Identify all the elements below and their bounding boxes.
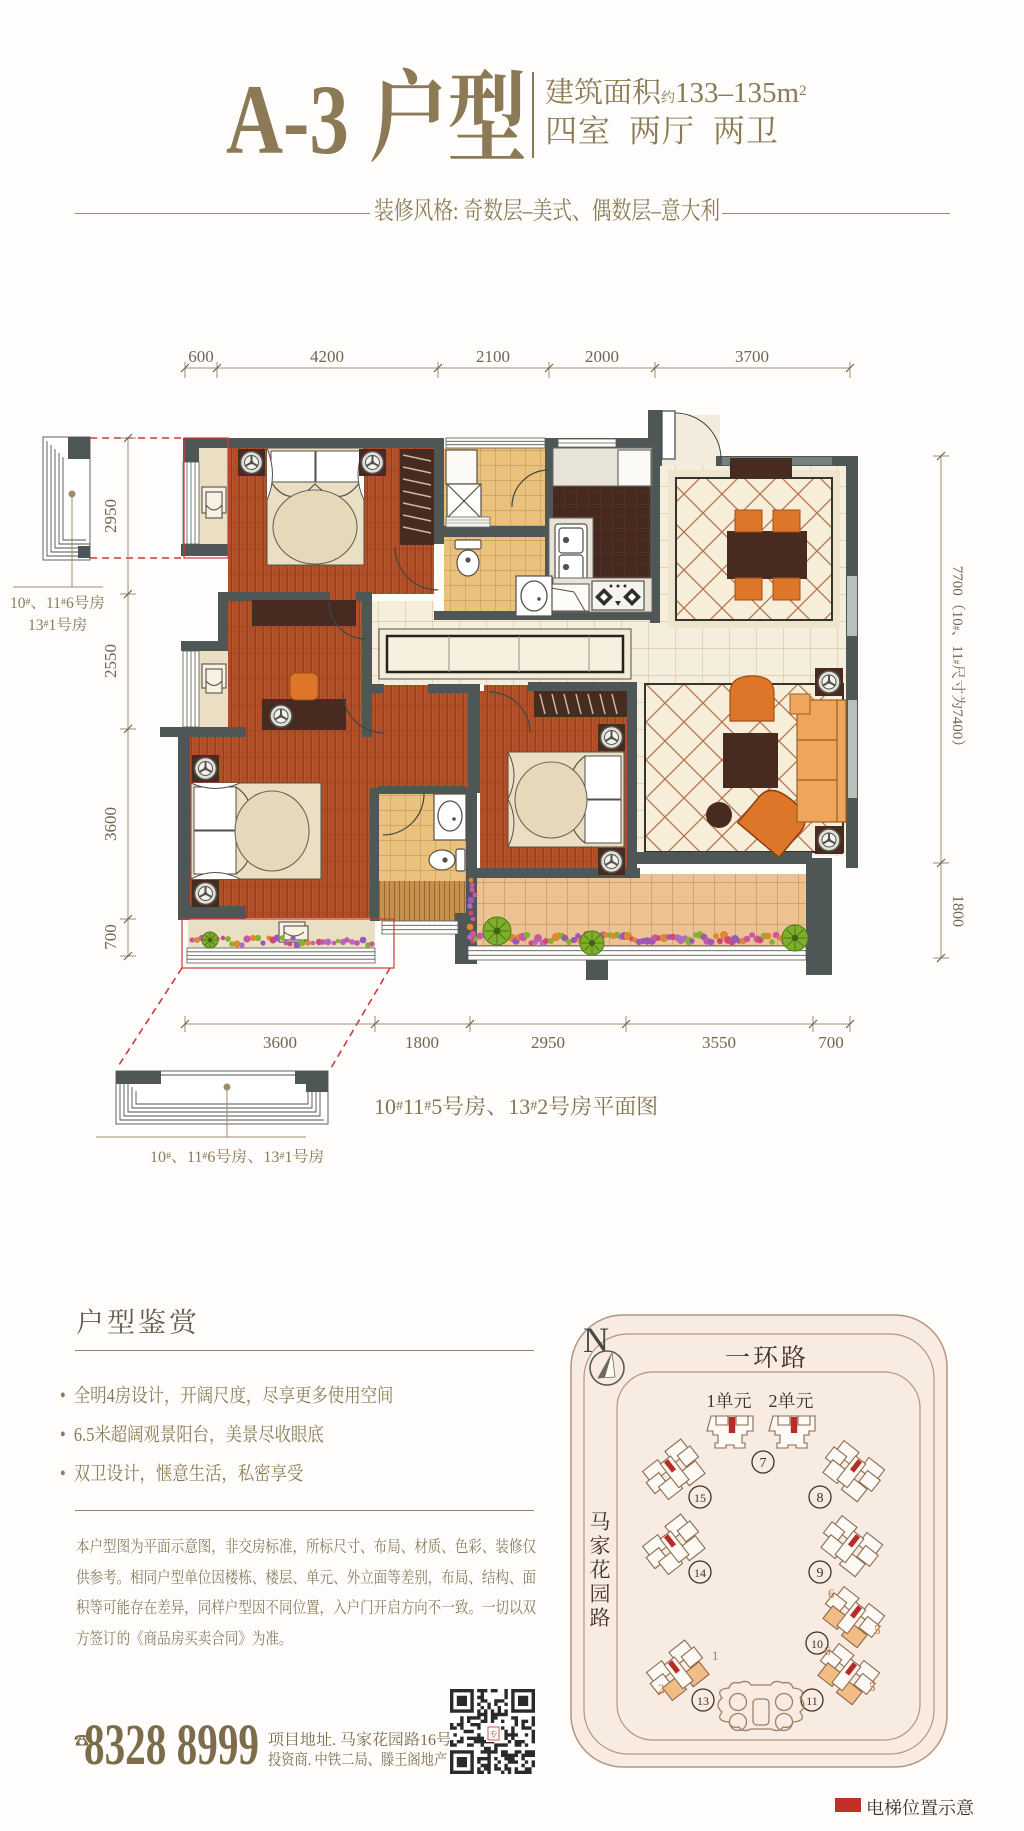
svg-text:1800: 1800 xyxy=(949,895,966,927)
svg-text:2: 2 xyxy=(658,1681,665,1696)
svg-text:4200: 4200 xyxy=(310,347,344,366)
svg-text:3600: 3600 xyxy=(101,807,120,841)
svg-text:马: 马 xyxy=(590,1510,611,1534)
svg-text:3600: 3600 xyxy=(263,1033,297,1052)
svg-text:7700（10#、11#尺寸为7400）: 7700（10#、11#尺寸为7400） xyxy=(949,566,966,754)
svg-text:700: 700 xyxy=(101,924,120,950)
svg-text:6: 6 xyxy=(828,1586,835,1601)
svg-text:10#11#5号房、13#2号房平面图: 10#11#5号房、13#2号房平面图 xyxy=(374,1094,658,1119)
svg-text:家: 家 xyxy=(590,1534,611,1558)
svg-text:一环路: 一环路 xyxy=(725,1345,809,1372)
svg-text:2100: 2100 xyxy=(476,347,510,366)
svg-text:3700: 3700 xyxy=(735,347,769,366)
svg-text:路: 路 xyxy=(590,1606,611,1630)
svg-text:14: 14 xyxy=(694,1566,706,1580)
svg-text:2550: 2550 xyxy=(101,644,120,678)
svg-text:700: 700 xyxy=(818,1033,844,1052)
svg-text:13: 13 xyxy=(697,1694,709,1708)
svg-text:1单元: 1单元 xyxy=(707,1391,752,1411)
svg-text:10: 10 xyxy=(811,1637,823,1651)
svg-text:6: 6 xyxy=(824,1643,831,1658)
svg-text:11: 11 xyxy=(806,1694,818,1708)
svg-text:1800: 1800 xyxy=(405,1033,439,1052)
svg-text:专: 专 xyxy=(490,1730,498,1739)
svg-text:10#、11#6号房: 10#、11#6号房 xyxy=(10,594,105,612)
svg-text:园: 园 xyxy=(590,1582,611,1606)
svg-text:600: 600 xyxy=(188,347,214,366)
svg-text:2950: 2950 xyxy=(531,1033,565,1052)
svg-text:15: 15 xyxy=(694,1491,706,1505)
svg-text:2000: 2000 xyxy=(585,347,619,366)
svg-text:3550: 3550 xyxy=(702,1033,736,1052)
svg-text:8: 8 xyxy=(817,1491,824,1506)
svg-text:5: 5 xyxy=(874,1622,881,1637)
svg-text:1: 1 xyxy=(712,1648,719,1663)
svg-text:9: 9 xyxy=(817,1566,824,1581)
svg-text:花: 花 xyxy=(590,1558,611,1582)
svg-text:13#1号房: 13#1号房 xyxy=(28,616,87,634)
svg-text:7: 7 xyxy=(760,1456,767,1471)
svg-text:2950: 2950 xyxy=(101,499,120,533)
svg-text:2单元: 2单元 xyxy=(769,1391,814,1411)
svg-text:5: 5 xyxy=(869,1679,876,1694)
svg-text:N: N xyxy=(583,1320,609,1360)
svg-text:10#、11#6号房、13#1号房: 10#、11#6号房、13#1号房 xyxy=(150,1148,324,1166)
